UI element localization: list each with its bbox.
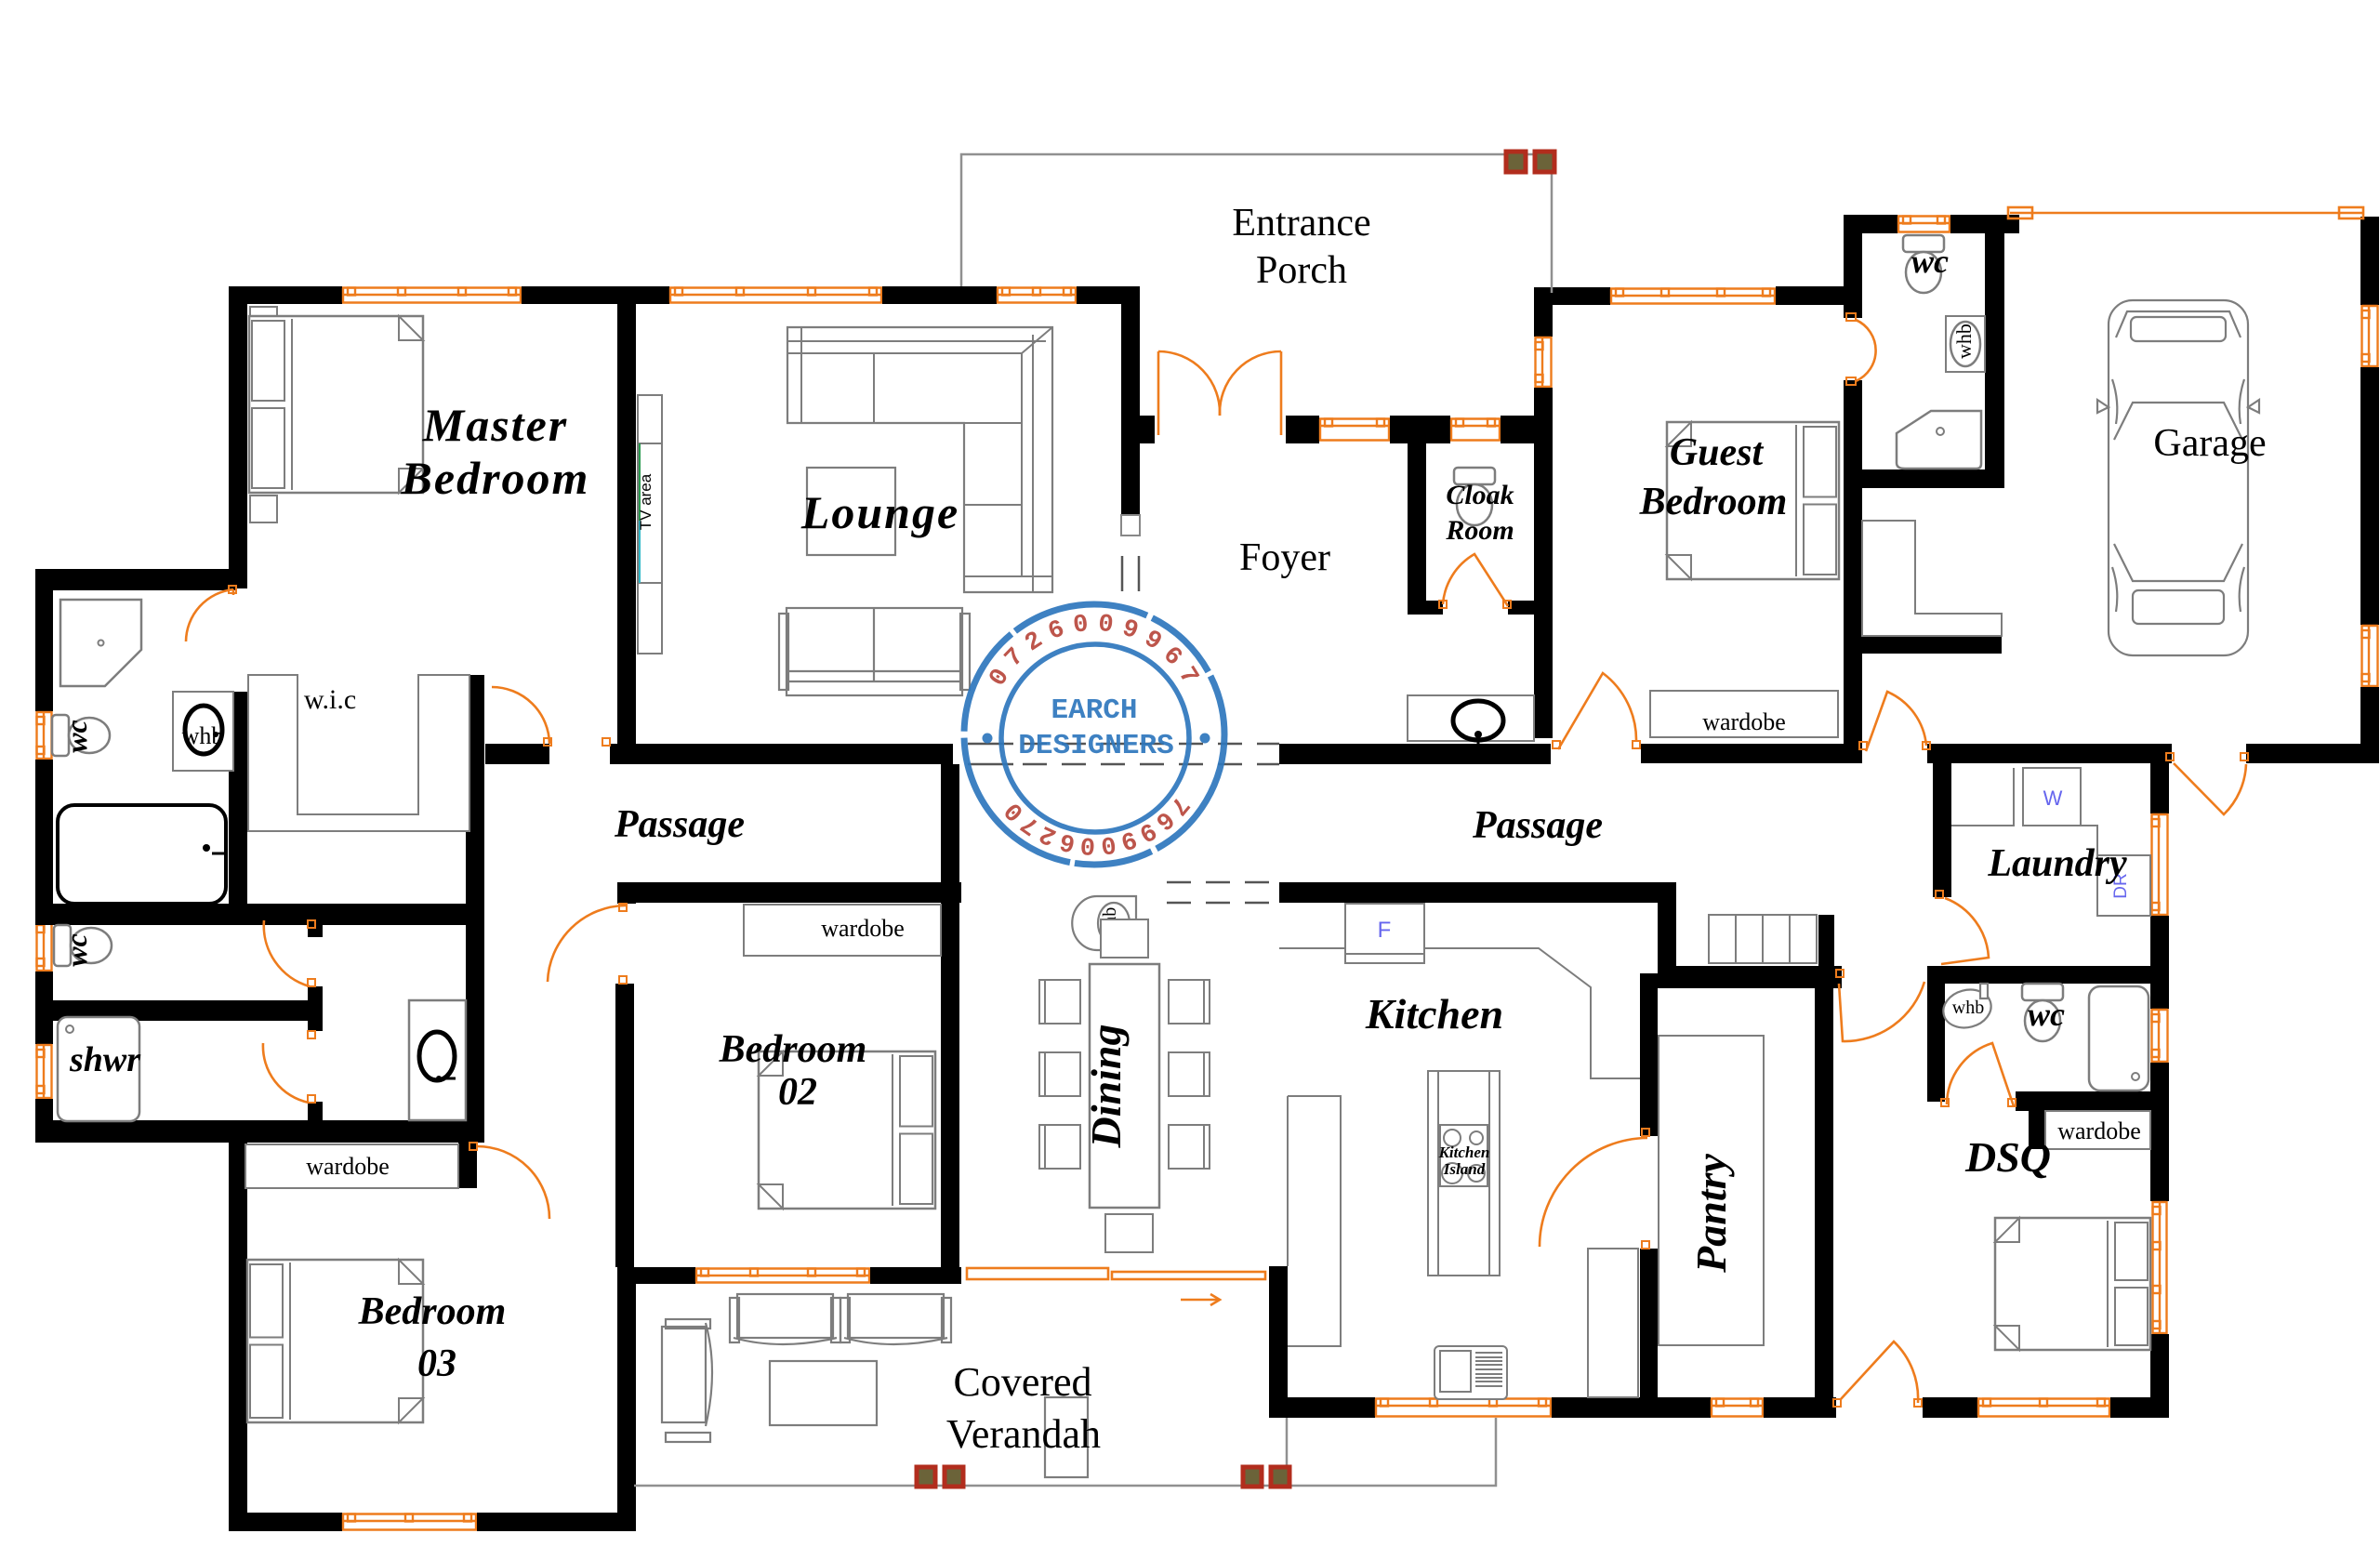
svg-text:Island: Island bbox=[1443, 1160, 1486, 1178]
svg-text:Bedroom: Bedroom bbox=[719, 1028, 867, 1071]
svg-text:wardobe: wardobe bbox=[306, 1153, 390, 1180]
svg-text:whb: whb bbox=[182, 722, 224, 749]
svg-text:Covered: Covered bbox=[953, 1359, 1091, 1405]
svg-text:0: 0 bbox=[1097, 611, 1115, 641]
svg-text:Kitchen: Kitchen bbox=[1438, 1144, 1490, 1161]
svg-text:Kitchen: Kitchen bbox=[1365, 990, 1503, 1038]
svg-text:Guest: Guest bbox=[1670, 431, 1765, 474]
svg-text:wc: wc bbox=[1911, 243, 1949, 280]
svg-text:wc: wc bbox=[59, 720, 93, 753]
svg-text:W: W bbox=[2043, 787, 2063, 810]
svg-text:wardobe: wardobe bbox=[1702, 708, 1786, 735]
svg-text:EARCH: EARCH bbox=[1051, 694, 1137, 727]
svg-text:Porch: Porch bbox=[1256, 249, 1347, 292]
svg-text:TV area: TV area bbox=[637, 473, 654, 530]
svg-text:Passage: Passage bbox=[1472, 804, 1603, 847]
svg-text:whb: whb bbox=[1952, 324, 1976, 359]
svg-text:DSQ: DSQ bbox=[1964, 1133, 2051, 1181]
svg-text:DESIGNERS: DESIGNERS bbox=[1018, 730, 1173, 762]
svg-text:wardobe: wardobe bbox=[2057, 1117, 2141, 1144]
svg-text:Passage: Passage bbox=[614, 803, 745, 846]
svg-text:0: 0 bbox=[1079, 829, 1096, 858]
svg-text:Pantry: Pantry bbox=[1687, 1154, 1735, 1274]
svg-text:Bedroom: Bedroom bbox=[1639, 481, 1788, 523]
svg-text:Bedroom: Bedroom bbox=[401, 452, 590, 504]
svg-text:shwr: shwr bbox=[69, 1040, 141, 1079]
svg-text:Master: Master bbox=[422, 399, 568, 451]
svg-text:Entrance: Entrance bbox=[1232, 202, 1370, 245]
svg-text:whb: whb bbox=[1952, 998, 1984, 1018]
svg-text:Dining: Dining bbox=[1082, 1025, 1130, 1149]
svg-text:F: F bbox=[1378, 918, 1392, 943]
svg-text:wc: wc bbox=[59, 933, 93, 967]
svg-text:Lounge: Lounge bbox=[800, 486, 959, 538]
svg-text:Cloak: Cloak bbox=[1446, 480, 1514, 510]
svg-text:Verandah: Verandah bbox=[946, 1411, 1101, 1457]
svg-text:Bedroom: Bedroom bbox=[358, 1290, 507, 1333]
svg-text:wc: wc bbox=[2028, 996, 2065, 1033]
svg-text:Foyer: Foyer bbox=[1239, 536, 1330, 579]
svg-text:wardobe: wardobe bbox=[821, 915, 905, 942]
svg-text:Room: Room bbox=[1445, 515, 1514, 546]
svg-text:Laundry: Laundry bbox=[1987, 842, 2127, 885]
svg-text:w.i.c: w.i.c bbox=[304, 684, 356, 715]
svg-text:02: 02 bbox=[778, 1071, 817, 1114]
svg-text:Garage: Garage bbox=[2153, 422, 2266, 465]
svg-text:03: 03 bbox=[417, 1342, 456, 1385]
